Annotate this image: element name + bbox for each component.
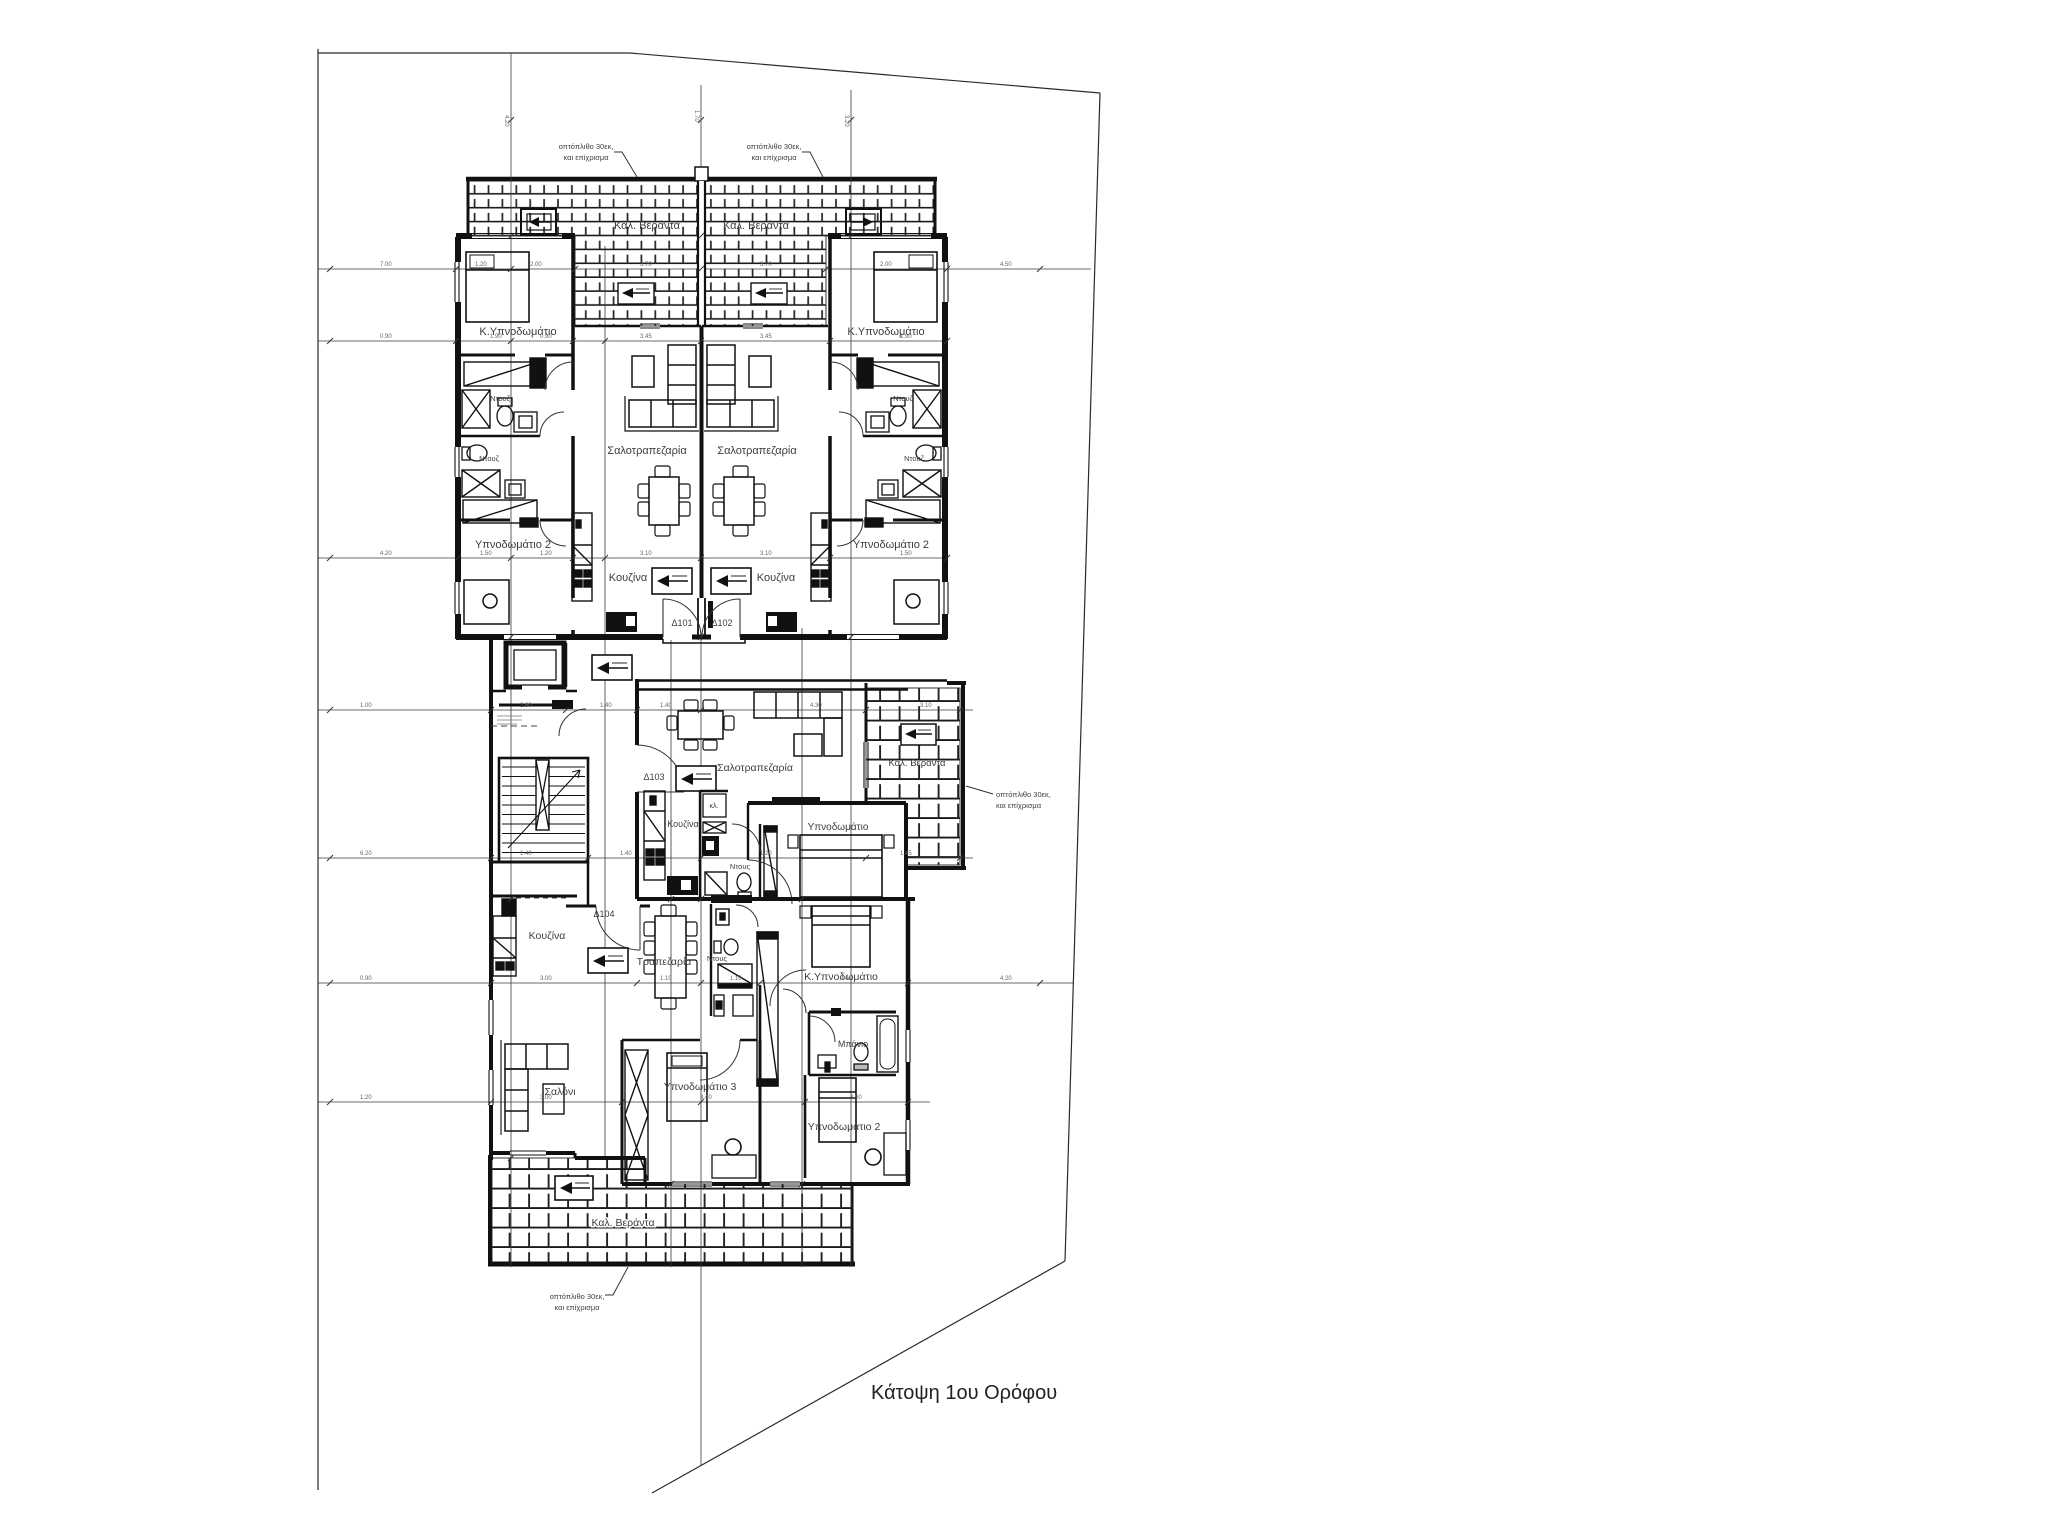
svg-text:Κουζίνα: Κουζίνα bbox=[757, 572, 796, 584]
svg-text:0.90: 0.90 bbox=[380, 334, 392, 340]
svg-text:Καλ. Βεράντα: Καλ. Βεράντα bbox=[888, 758, 946, 769]
svg-text:1.20: 1.20 bbox=[360, 1095, 372, 1101]
svg-text:1.90: 1.90 bbox=[900, 334, 912, 340]
svg-text:1.40: 1.40 bbox=[660, 703, 672, 709]
svg-text:και επίχρισμα: και επίχρισμα bbox=[996, 801, 1042, 810]
svg-text:1.10: 1.10 bbox=[660, 976, 672, 982]
svg-text:Κουζίνα: Κουζίνα bbox=[667, 819, 699, 829]
svg-text:Υπνοδωμάτιο: Υπνοδωμάτιο bbox=[808, 821, 869, 833]
svg-text:4.20: 4.20 bbox=[380, 551, 392, 557]
svg-text:οπτόπλιθο 30εκ,: οπτόπλιθο 30εκ, bbox=[996, 790, 1051, 799]
svg-text:Ντους: Ντους bbox=[730, 862, 751, 871]
svg-text:4.30: 4.30 bbox=[810, 703, 822, 709]
svg-text:3.10: 3.10 bbox=[920, 703, 932, 709]
svg-text:1.40: 1.40 bbox=[520, 851, 532, 857]
svg-text:0.90: 0.90 bbox=[540, 334, 552, 340]
svg-text:οπτόπλιθο 30εκ,: οπτόπλιθο 30εκ, bbox=[550, 1292, 605, 1301]
svg-text:1.50: 1.50 bbox=[480, 551, 492, 557]
svg-text:Μπάνιο: Μπάνιο bbox=[838, 1039, 868, 1049]
svg-text:Ντουζ: Ντουζ bbox=[893, 394, 914, 403]
svg-text:οπτόπλιθο 30εκ,: οπτόπλιθο 30εκ, bbox=[559, 142, 614, 151]
svg-text:7.00: 7.00 bbox=[380, 262, 392, 268]
svg-text:Σαλοτραπεζαρία: Σαλοτραπεζαρία bbox=[607, 445, 687, 457]
svg-text:3.20: 3.20 bbox=[843, 115, 849, 127]
svg-text:0.90: 0.90 bbox=[360, 976, 372, 982]
svg-text:2.60: 2.60 bbox=[520, 703, 532, 709]
svg-text:3.40: 3.40 bbox=[840, 976, 852, 982]
svg-text:οπτόπλιθο 30εκ,: οπτόπλιθο 30εκ, bbox=[747, 142, 802, 151]
svg-text:3.70: 3.70 bbox=[640, 262, 652, 268]
svg-text:Δ101: Δ101 bbox=[671, 618, 692, 628]
svg-text:Υπνοδωμάτιο 2: Υπνοδωμάτιο 2 bbox=[808, 1121, 881, 1133]
svg-text:Υπνοδωμάτιο 3: Υπνοδωμάτιο 3 bbox=[664, 1081, 737, 1093]
svg-text:4.50: 4.50 bbox=[1000, 262, 1012, 268]
svg-text:1.90: 1.90 bbox=[490, 334, 502, 340]
svg-text:Ντους: Ντους bbox=[707, 954, 728, 963]
svg-text:Καλ. Βεράντα: Καλ. Βεράντα bbox=[614, 220, 681, 232]
svg-text:Ντουζ: Ντουζ bbox=[479, 454, 500, 463]
svg-text:3.45: 3.45 bbox=[640, 334, 652, 340]
svg-text:Υπνοδωμάτιο 2: Υπνοδωμάτιο 2 bbox=[853, 539, 929, 551]
svg-text:6.20: 6.20 bbox=[360, 851, 372, 857]
svg-text:1.10: 1.10 bbox=[730, 976, 742, 982]
svg-text:1.20: 1.20 bbox=[760, 851, 772, 857]
svg-text:3.70: 3.70 bbox=[760, 262, 772, 268]
svg-text:Σαλοτραπεζαρία: Σαλοτραπεζαρία bbox=[717, 445, 797, 457]
svg-text:κλ.: κλ. bbox=[710, 803, 719, 810]
svg-text:1.50: 1.50 bbox=[900, 551, 912, 557]
svg-text:Δ104: Δ104 bbox=[593, 909, 614, 919]
svg-text:Υπνοδωμάτιο 2: Υπνοδωμάτιο 2 bbox=[475, 539, 551, 551]
svg-text:Καλ. Βεράντα: Καλ. Βεράντα bbox=[591, 1217, 654, 1229]
svg-text:Ντουζ: Ντουζ bbox=[490, 394, 511, 403]
svg-text:Δ102: Δ102 bbox=[711, 618, 732, 628]
svg-text:2.00: 2.00 bbox=[880, 262, 892, 268]
svg-text:Σαλοτραπεζαρία: Σαλοτραπεζαρία bbox=[717, 762, 793, 774]
svg-text:Καλ. Βεράντα: Καλ. Βεράντα bbox=[723, 220, 790, 232]
svg-text:Κ.Υπνοδωμάτιο: Κ.Υπνοδωμάτιο bbox=[847, 326, 924, 338]
svg-text:1.00: 1.00 bbox=[360, 703, 372, 709]
svg-text:1.45: 1.45 bbox=[900, 851, 912, 857]
svg-text:3.00: 3.00 bbox=[540, 976, 552, 982]
svg-text:2.00: 2.00 bbox=[530, 262, 542, 268]
svg-text:3.45: 3.45 bbox=[760, 334, 772, 340]
svg-text:3.10: 3.10 bbox=[640, 551, 652, 557]
svg-text:και επίχρισμα: και επίχρισμα bbox=[751, 153, 797, 162]
svg-text:1.40: 1.40 bbox=[620, 851, 632, 857]
svg-text:1.70: 1.70 bbox=[693, 110, 699, 122]
svg-text:3.40: 3.40 bbox=[700, 1095, 712, 1101]
svg-text:και επίχρισμα: και επίχρισμα bbox=[554, 1303, 600, 1312]
svg-text:3.00: 3.00 bbox=[540, 1095, 552, 1101]
svg-text:3.10: 3.10 bbox=[760, 551, 772, 557]
svg-text:Δ103: Δ103 bbox=[643, 772, 664, 782]
svg-text:1.40: 1.40 bbox=[600, 703, 612, 709]
svg-text:4.20: 4.20 bbox=[503, 115, 509, 127]
svg-text:Τραπεζαρία: Τραπεζαρία bbox=[637, 956, 692, 968]
svg-text:Κάτοψη 1ου Ορόφου: Κάτοψη 1ου Ορόφου bbox=[871, 1382, 1057, 1404]
svg-text:1.20: 1.20 bbox=[540, 551, 552, 557]
svg-text:1.20: 1.20 bbox=[475, 262, 487, 268]
svg-text:Ντουζ: Ντουζ bbox=[904, 454, 925, 463]
svg-text:Κουζίνα: Κουζίνα bbox=[609, 572, 648, 584]
svg-text:και επίχρισμα: και επίχρισμα bbox=[563, 153, 609, 162]
svg-text:4.20: 4.20 bbox=[1000, 976, 1012, 982]
svg-text:3.00: 3.00 bbox=[850, 1095, 862, 1101]
svg-text:Κουζίνα: Κουζίνα bbox=[529, 930, 566, 942]
